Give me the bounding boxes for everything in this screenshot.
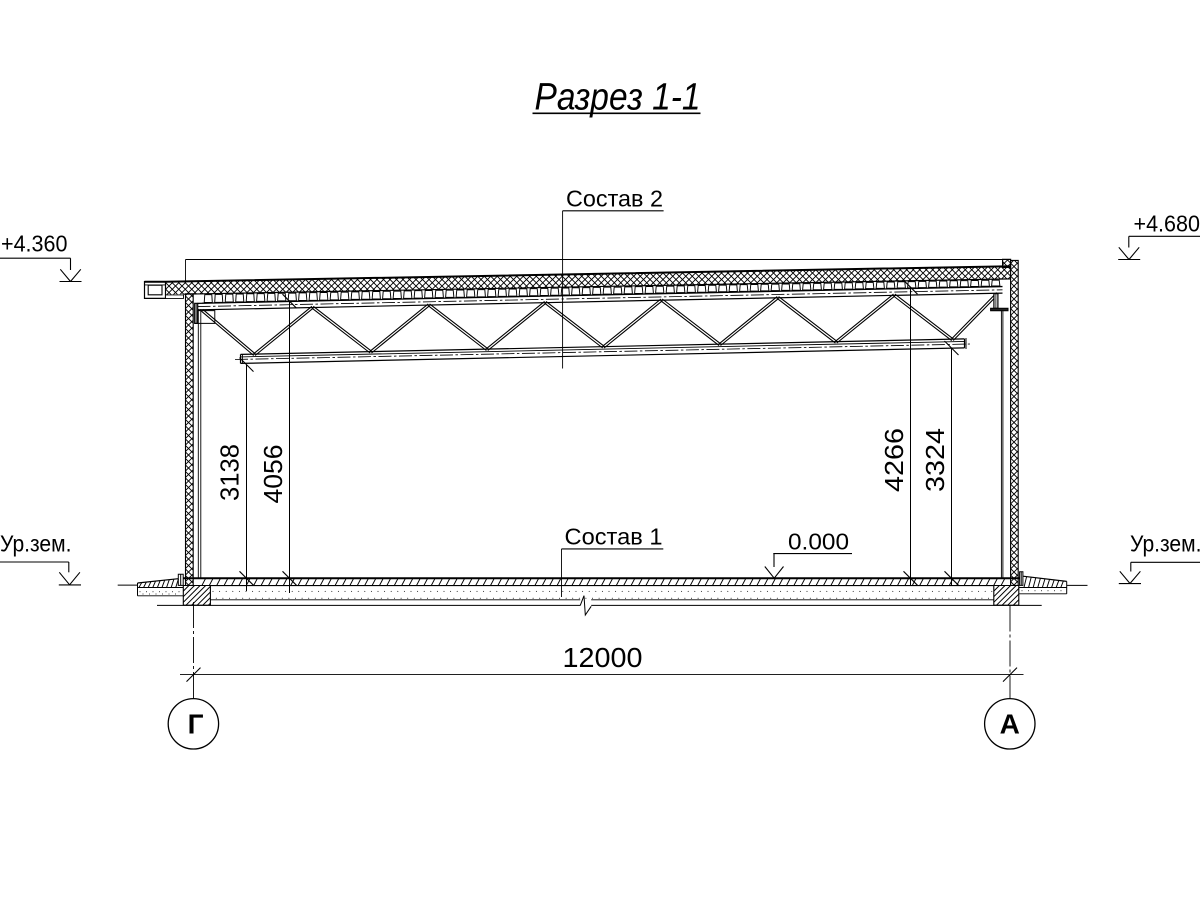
svg-text:12000: 12000 xyxy=(563,642,643,673)
svg-text:Ур.зем.: Ур.зем. xyxy=(1130,531,1200,557)
svg-text:4056: 4056 xyxy=(258,445,288,504)
svg-text:+4.360: +4.360 xyxy=(1,231,68,257)
svg-text:+4.680: +4.680 xyxy=(1134,211,1200,237)
svg-text:Разрез 1-1: Разрез 1-1 xyxy=(535,77,701,119)
svg-text:Г: Г xyxy=(188,709,204,740)
svg-text:Ур.зем.: Ур.зем. xyxy=(0,531,72,557)
svg-text:Состав 2: Состав 2 xyxy=(566,186,663,212)
svg-text:Состав 1: Состав 1 xyxy=(565,524,663,550)
svg-text:А: А xyxy=(1000,709,1020,740)
svg-text:3324: 3324 xyxy=(920,428,950,492)
svg-text:4266: 4266 xyxy=(879,428,909,492)
svg-text:0.000: 0.000 xyxy=(788,529,849,555)
svg-text:3138: 3138 xyxy=(214,444,244,501)
